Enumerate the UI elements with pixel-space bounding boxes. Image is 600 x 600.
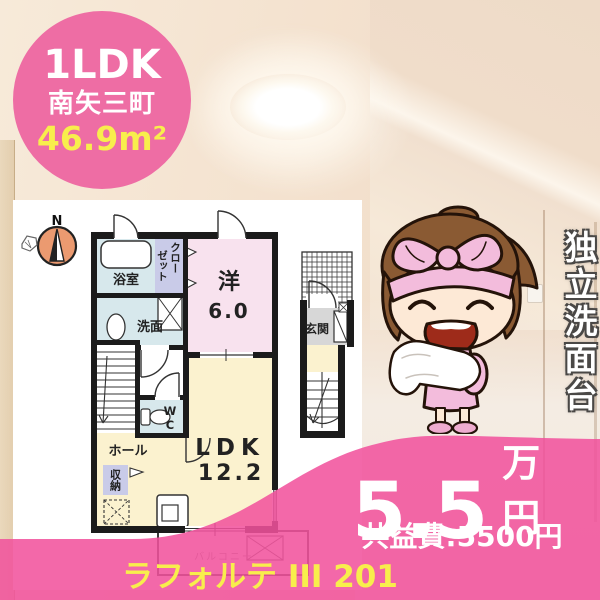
ldk-size: 12.2 bbox=[198, 461, 264, 486]
storage-label: 収納 bbox=[109, 469, 122, 492]
kitchen-counter bbox=[157, 495, 188, 527]
floorplan-drawing: バルコニー bbox=[13, 200, 362, 590]
bathtub bbox=[101, 241, 151, 268]
compass-label: N bbox=[52, 214, 63, 229]
feature-banner: 独立洗面台 bbox=[550, 230, 596, 425]
wc-label: WC bbox=[163, 404, 177, 432]
hall-label: ホール bbox=[108, 444, 147, 459]
property-badge: 1LDK 南矢三町 46.9m² bbox=[13, 11, 191, 189]
building-name: ラフォルテ III 201 bbox=[85, 551, 435, 596]
closet-label: ゼット bbox=[156, 249, 168, 281]
floorplan-panel: バルコニー bbox=[13, 200, 362, 590]
western-room-label: 洋 bbox=[218, 269, 240, 295]
ceiling-light bbox=[230, 74, 346, 140]
washroom-label: 洗面 bbox=[137, 319, 163, 335]
bath-label: 浴室 bbox=[113, 272, 139, 288]
common-fee: 共益費:5500円 bbox=[348, 515, 576, 555]
western-room-size: 6.0 bbox=[208, 299, 249, 323]
entrance-label: 玄関 bbox=[305, 321, 329, 336]
listing-flyer: バルコニー bbox=[0, 0, 600, 600]
closet-label: クロー bbox=[169, 242, 181, 274]
washbasin bbox=[107, 314, 125, 340]
town-name: 南矢三町 bbox=[48, 90, 156, 119]
ldk-label: LDK bbox=[195, 435, 265, 461]
mascot-character-illustration bbox=[372, 202, 540, 434]
layout-type: 1LDK bbox=[43, 43, 161, 87]
floor-area: 46.9m² bbox=[37, 121, 167, 157]
